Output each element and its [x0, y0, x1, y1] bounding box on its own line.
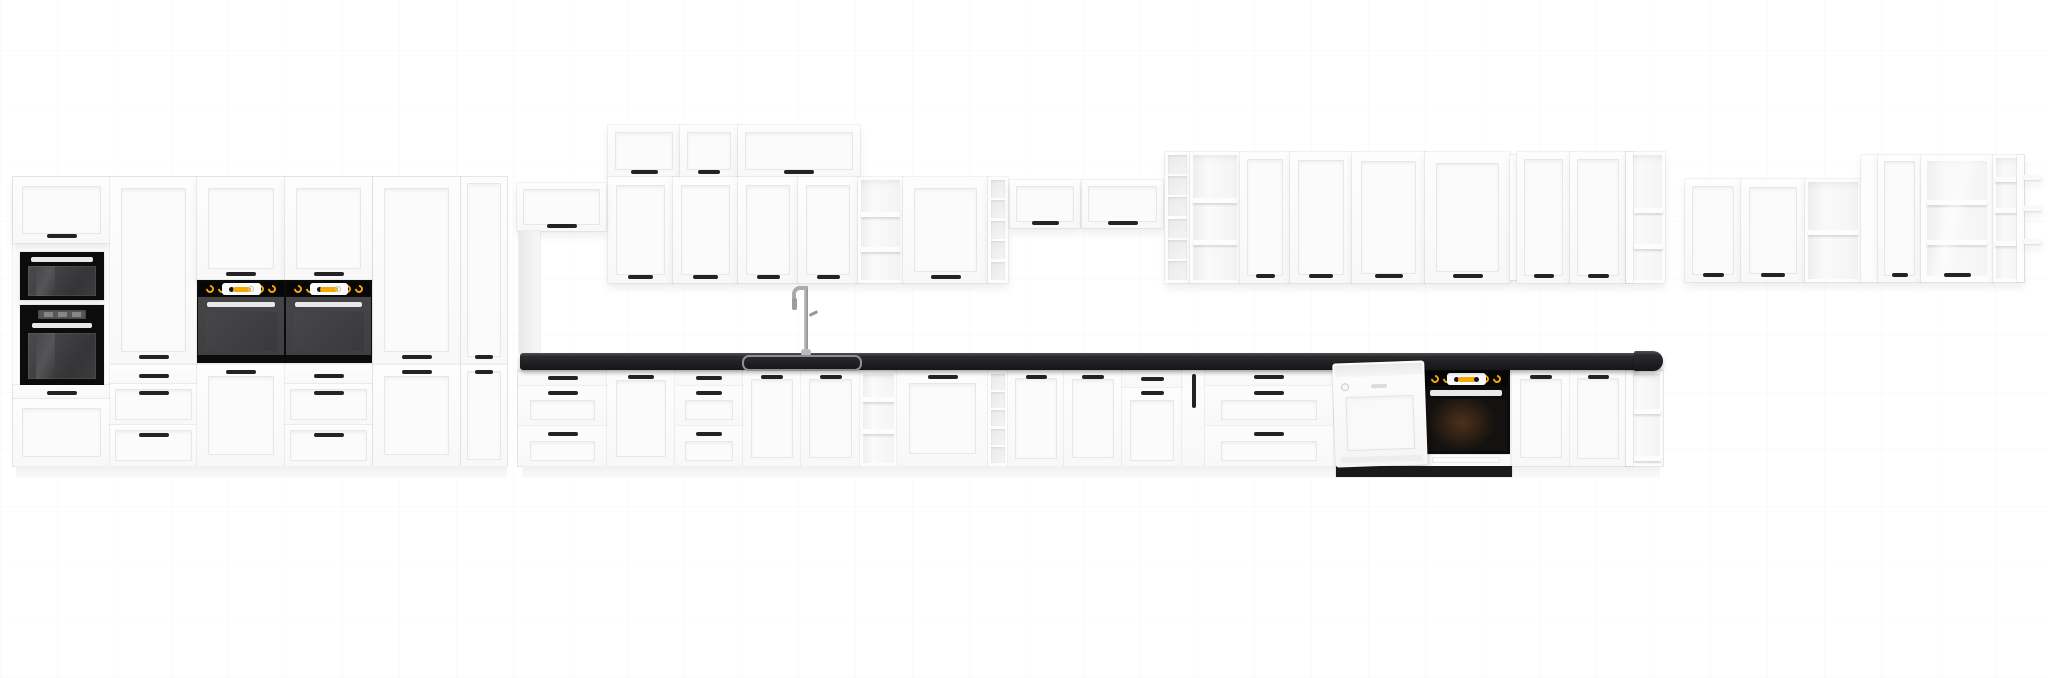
base-drawer-unit-wide-drawer-2: [1205, 385, 1333, 425]
right-corner-open-shelf-shelf-2: [1995, 208, 2016, 213]
tall3-top-door-door-panel: [208, 188, 274, 269]
base-drawer-unit-wide-drawer-panel-3: [1221, 441, 1317, 461]
wall-open-shelf-1-shelf-1: [861, 212, 900, 217]
tall6-door-door-panel: [467, 183, 501, 357]
wall-door-cab-7: [1290, 152, 1352, 283]
wall-door-cab-4: [798, 177, 858, 283]
wall-rack-column-2-cell-6: [1168, 261, 1187, 280]
hood-cabinet: [517, 183, 606, 231]
high-flip-cab-2-handle: [1108, 221, 1138, 225]
wall-flip-cab-1-door-panel: [615, 132, 673, 170]
tall5-door-door-panel: [384, 188, 449, 352]
tall2-door-handle: [139, 355, 169, 359]
under-counter-oven-knob-dot-2: [1474, 377, 1479, 382]
tall4-top-door: [285, 177, 372, 280]
tall4-drawer-top-handle: [314, 374, 344, 378]
tall1-microwave-handle-bar: [31, 257, 93, 262]
tall2-drawer-top-handle: [139, 374, 169, 378]
tall3-bottom-door-door-panel: [208, 376, 274, 455]
wall-door-cab-2-handle: [693, 275, 718, 279]
wall-door-cab-1-door-panel: [616, 185, 665, 275]
tall6-bottom-door: [461, 365, 507, 466]
tall1-bottom-door: [13, 399, 110, 466]
wall-door-cab-6-handle: [1256, 274, 1275, 278]
wall-open-shelf-1: [858, 177, 903, 283]
wall-door-cab-9-door-panel: [1436, 163, 1499, 272]
base-door-cab-4: [1064, 371, 1122, 466]
wall-flip-cab-2-door-panel: [687, 132, 731, 170]
wall-corner-open-shelf: [1626, 152, 1665, 283]
wall-rack-column-2-cell-3: [1168, 197, 1187, 216]
wall-door-cab-4-handle: [817, 275, 840, 279]
wall-rack-column-1-cell-1: [991, 180, 1005, 198]
dishwasher: [1332, 360, 1428, 467]
wall-door-cab-9-handle: [1453, 274, 1483, 278]
base-drawer-unit-2-drawer-1: [675, 371, 743, 385]
base-drawer-unit-2-drawer-3: [675, 425, 743, 466]
wall-rack-column-1-cell-4: [991, 241, 1005, 259]
base-end-open-shelf: [1626, 371, 1663, 466]
sink-faucet-spray-head: [792, 298, 797, 310]
base-door-cab-4-door-panel: [1072, 379, 1114, 458]
wall-door-cab-1: [608, 177, 673, 283]
tall1-oven-display-seg-2: [58, 312, 67, 317]
tall1-top-door-door-panel: [22, 186, 101, 234]
tall4-drawer-mid-handle: [314, 391, 344, 395]
wall-rack-column-1: [988, 177, 1008, 283]
base-drawer-unit-2-drawer-panel-2: [685, 400, 733, 420]
base-door-cab-5: [1512, 371, 1570, 466]
sink-basin: [742, 355, 862, 371]
base-rack-column-cell-3: [991, 410, 1005, 426]
tall5-bottom-door-handle: [402, 370, 432, 374]
tall2-door-door-panel: [121, 188, 186, 352]
tall3-top-door-handle: [226, 272, 256, 276]
wall-door-cab-2: [673, 177, 738, 283]
sink-faucet-rod: [804, 288, 808, 351]
right-wall-door-cab-1-door-panel: [1692, 186, 1734, 275]
tall3-built-in-oven: [197, 280, 285, 363]
base-rack-column-cell-1: [991, 374, 1005, 390]
base-door-cab-3: [1008, 371, 1064, 466]
tall1-small-drawer: [13, 385, 110, 399]
corner-shelf-stub-1: [2024, 175, 2042, 180]
wall-corner-open-shelf-shelf-1: [1634, 208, 1663, 213]
dishwasher-top-band: [1334, 362, 1422, 377]
base-door-cab-1: [607, 371, 675, 466]
right-wall-glass-cab-glass-sheen: [1927, 161, 1987, 276]
dishwasher-handle-slot: [1371, 384, 1387, 389]
wall-rack-column-1-cell-5: [991, 262, 1005, 280]
dishwasher-kick-vent: [1340, 455, 1422, 464]
base-open-shelf-shelf-1: [863, 397, 894, 402]
base-drawer-unit-wide: [1205, 371, 1333, 466]
tall3-built-in-oven-knob-dot-2: [248, 286, 254, 292]
right-wall-door-cab-1: [1685, 179, 1741, 282]
base-drawer-unit-2-drawer-handle-3: [696, 432, 722, 436]
base-drawer-door-unit-drawer-1: [1122, 371, 1182, 387]
kitchen-set-product-render: [0, 0, 2048, 678]
wall-door-cab-10: [1517, 152, 1570, 283]
base-door-cab-2-handle: [928, 375, 958, 379]
base-drawer-door-unit-drawer-panel-2: [1130, 400, 1174, 461]
base-drawer-unit-wide-drawer-handle-1: [1254, 375, 1284, 379]
wall-door-cab-1-handle: [628, 275, 653, 279]
corner-shelf-stub-2: [2024, 206, 2042, 211]
tall2-drawer-mid: [110, 384, 197, 425]
base-end-open-shelf-side-panel: [1626, 371, 1633, 466]
base-drawer-unit-1-drawer-handle-3: [548, 432, 578, 436]
hood-cabinet-door-panel: [523, 189, 600, 225]
wall-door-cab-5: [903, 177, 988, 283]
base-door-cab-1-door-panel: [616, 380, 666, 457]
right-wall-door-cab-1-handle: [1703, 273, 1724, 277]
base-drawer-unit-1-drawer-panel-2: [530, 400, 595, 420]
tall1-oven-window: [28, 333, 96, 379]
right-wall-door-cab-2: [1741, 179, 1805, 282]
tall5-bottom-door: [373, 365, 460, 466]
base-drawer-unit-wide-drawer-1: [1205, 371, 1333, 385]
right-corner-open-shelf: [1993, 155, 2024, 282]
tall3-built-in-oven-handle-bar: [207, 302, 275, 307]
base-rack-column-cell-2: [991, 392, 1005, 408]
hood-chimney-panel: [519, 231, 540, 353]
right-wall-glass-cab-handle: [1944, 273, 1971, 277]
tall4-built-in-oven-handle-bar: [295, 302, 362, 307]
tall4-built-in-oven-knob-icon-1: [292, 283, 303, 294]
base-drawer-unit-1-drawer-handle-2: [548, 391, 578, 395]
wall-rack-column-2-cell-4: [1168, 219, 1187, 238]
right-wall-open-shelf: [1805, 179, 1861, 282]
tall4-top-door-handle: [314, 272, 344, 276]
under-counter-oven-bottom-drawer-line: [1432, 457, 1500, 463]
tall2-drawer-bot-handle: [139, 433, 169, 437]
tall2-drawer-mid-handle: [139, 391, 169, 395]
tall1-top-door-handle: [47, 234, 77, 238]
tall3-built-in-oven-control-panel: [199, 282, 283, 296]
tall6-bottom-door-handle: [475, 370, 493, 374]
tall2-door: [110, 177, 197, 363]
base-cargo-pullout-pull-handle: [1192, 374, 1196, 408]
base-door-cab-6: [1570, 371, 1626, 466]
tall4-built-in-oven-knob-icon-3: [353, 283, 364, 294]
tall1-oven-handle-bar: [32, 323, 92, 328]
right-wall-filler: [1861, 155, 1878, 282]
wall-door-cab-3: [738, 177, 798, 283]
wall-corner-open-shelf-side-panel: [1626, 152, 1633, 283]
tall5-door: [373, 177, 460, 363]
base-door-cab-2-door-panel: [909, 383, 976, 454]
base-drawer-unit-wide-drawer-panel-2: [1221, 400, 1317, 420]
base-end-open-shelf-shelf-2: [1634, 456, 1661, 461]
base-door-cab-3-handle: [1026, 375, 1047, 379]
right-wall-open-shelf-shelf-1: [1808, 230, 1858, 235]
tall1-top-door: [13, 177, 110, 243]
base-door-cab-2: [897, 371, 988, 466]
under-counter-oven-glass: [1425, 399, 1507, 451]
base-door-cab-6-handle: [1588, 375, 1609, 379]
tall3-built-in-oven-control-pill: [222, 283, 261, 295]
wall-door-cab-6: [1240, 152, 1290, 283]
wall-door-cab-7-handle: [1309, 274, 1333, 278]
sink-base-door-2-door-panel: [809, 379, 852, 458]
tall4-built-in-oven-knob-dot-2: [335, 286, 341, 292]
wall-open-shelf-2-shelf-2: [1193, 240, 1237, 245]
wall-door-cab-3-door-panel: [746, 185, 790, 275]
tall6-door: [461, 177, 507, 363]
appliance-plinth-recess: [1336, 466, 1512, 477]
corner-shelf-stub-3: [2024, 239, 2042, 244]
base-door-cab-1-handle: [628, 375, 654, 379]
base-drawer-unit-wide-drawer-handle-3: [1254, 432, 1284, 436]
right-corner-open-shelf-shelf-1: [1995, 177, 2016, 182]
under-counter-oven-handle-bar: [1430, 390, 1502, 396]
tall2-drawer-bot: [110, 425, 197, 466]
wall-door-cab-8: [1352, 152, 1425, 283]
wall-flip-cab-2-handle: [698, 170, 720, 174]
tall6-bottom-door-door-panel: [467, 371, 501, 460]
base-door-cab-4-handle: [1082, 375, 1104, 379]
base-end-open-shelf-shelf-1: [1634, 409, 1661, 414]
dishwasher-front-panel: [1345, 395, 1415, 451]
base-cargo-pullout: [1182, 371, 1205, 466]
base-drawer-door-unit-drawer-handle-2: [1141, 391, 1164, 395]
base-open-shelf-shelf-2: [863, 429, 894, 434]
base-drawer-unit-1-drawer-handle-1: [548, 376, 578, 380]
wall-door-cab-11: [1570, 152, 1626, 283]
right-wall-door-cab-3-handle: [1892, 273, 1908, 277]
wall-door-cab-10-handle: [1534, 274, 1554, 278]
wall-door-cab-11-door-panel: [1577, 159, 1619, 276]
base-drawer-unit-1-drawer-3: [518, 425, 607, 466]
right-corner-open-shelf-side-panel: [2017, 155, 2024, 282]
base-rack-column-cell-5: [991, 447, 1005, 463]
base-rack-column: [988, 371, 1008, 466]
wall-door-cab-8-handle: [1375, 274, 1403, 278]
tall1-small-drawer-handle: [47, 391, 77, 395]
wall-rack-column-2-cell-2: [1168, 176, 1187, 195]
tall4-drawer-bot: [285, 425, 372, 466]
sink-base-door-1-door-panel: [751, 379, 793, 458]
base-drawer-unit-1-drawer-panel-3: [530, 441, 595, 461]
tall1-oven-display-seg-1: [44, 312, 53, 317]
wall-door-cab-7-door-panel: [1298, 160, 1344, 275]
tall3-built-in-oven-knob-icon-3: [266, 283, 277, 294]
right-corner-open-shelf-shelf-3: [1995, 241, 2016, 246]
base-drawer-door-unit: [1122, 371, 1182, 466]
tall4-drawer-mid: [285, 384, 372, 425]
base-drawer-unit-1: [518, 371, 607, 466]
tall4-built-in-oven-inner-glass: [293, 312, 364, 351]
high-flip-cab-1-door-panel: [1016, 186, 1074, 222]
tall3-built-in-oven-knob-icon-1: [204, 283, 215, 294]
right-wall-door-cab-3-door-panel: [1884, 161, 1915, 276]
sink-base-door-2-handle: [820, 375, 842, 379]
tall5-bottom-door-door-panel: [384, 376, 449, 455]
tall1-oven-display: [38, 310, 86, 319]
wall-door-cab-9: [1425, 152, 1510, 283]
wall-flip-cab-3-door-panel: [745, 132, 853, 170]
tall3-top-door: [197, 177, 285, 280]
under-counter-oven-knob-icon-1: [1429, 373, 1440, 384]
wall-open-shelf-1-shelf-2: [861, 247, 900, 252]
tall1-microwave: [20, 252, 104, 300]
tall1-oven: [20, 305, 104, 385]
tall2-drawer-top: [110, 365, 197, 384]
wall-door-cab-5-door-panel: [914, 188, 977, 272]
sink-faucet-base: [801, 349, 811, 355]
high-flip-cab-1-handle: [1032, 221, 1059, 225]
wall-door-cab-10-door-panel: [1524, 159, 1563, 276]
sink-faucet-lever: [809, 310, 818, 317]
tall6-door-handle: [475, 355, 493, 359]
right-wall-door-cab-3: [1878, 155, 1921, 282]
base-drawer-unit-2-drawer-2: [675, 385, 743, 425]
base-door-cab-6-door-panel: [1577, 378, 1619, 459]
base-open-shelf: [860, 371, 897, 466]
wall-door-cab-4-door-panel: [806, 185, 850, 275]
sink-base-door-1: [743, 371, 801, 466]
wall-filler-strip: [1510, 155, 1517, 280]
under-counter-oven-knob-icon-3: [1491, 373, 1502, 384]
wall-flip-cab-3: [738, 125, 860, 177]
base-drawer-unit-2-drawer-handle-1: [696, 376, 722, 380]
under-counter-oven: [1422, 369, 1510, 466]
high-flip-cab-2: [1082, 180, 1163, 228]
countertop: [520, 353, 1638, 370]
tall4-built-in-oven: [285, 280, 372, 363]
base-drawer-unit-2-drawer-handle-2: [696, 391, 722, 395]
wall-rack-column-2-cell-5: [1168, 240, 1187, 259]
tall4-drawer-top: [285, 365, 372, 384]
base-door-cab-5-door-panel: [1520, 379, 1562, 458]
base-rack-column-cell-4: [991, 429, 1005, 445]
tall4-built-in-oven-control-panel: [287, 282, 370, 296]
wall-door-cab-8-door-panel: [1361, 161, 1416, 274]
sink-base-door-2: [801, 371, 860, 466]
high-flip-cab-2-door-panel: [1088, 186, 1157, 222]
tall3-bottom-door-handle: [226, 370, 256, 374]
right-wall-glass-cab: [1921, 155, 1993, 282]
tall4-drawer-bot-handle: [314, 433, 344, 437]
base-door-cab-5-handle: [1530, 375, 1552, 379]
wall-flip-cab-1: [608, 125, 680, 177]
wall-rack-column-2: [1165, 152, 1190, 283]
base-drawer-unit-2: [675, 371, 743, 466]
wall-door-cab-11-handle: [1588, 274, 1609, 278]
wall-corner-open-shelf-shelf-2: [1634, 244, 1663, 249]
tall3-built-in-oven-inner-glass: [205, 312, 277, 351]
sink-base-door-1-handle: [761, 375, 783, 379]
wall-open-shelf-2-shelf-1: [1193, 198, 1237, 203]
wall-door-cab-3-handle: [757, 275, 780, 279]
wall-flip-cab-2: [680, 125, 738, 177]
base-drawer-unit-2-drawer-panel-3: [685, 441, 733, 461]
base-drawer-unit-wide-drawer-3: [1205, 425, 1333, 466]
hood-cabinet-handle: [547, 224, 577, 228]
floor-shadow-right: [516, 478, 1666, 491]
tall1-bottom-door-door-panel: [22, 408, 101, 457]
high-flip-cab-1: [1010, 180, 1080, 228]
wall-flip-cab-3-handle: [784, 170, 814, 174]
wall-door-cab-6-door-panel: [1247, 159, 1283, 276]
tall4-built-in-oven-control-pill: [310, 283, 348, 295]
wall-open-shelf-2: [1190, 152, 1240, 283]
tall1-microwave-window: [28, 266, 96, 296]
tall-run-plinth: [16, 466, 507, 478]
base-drawer-unit-1-drawer-1: [518, 371, 607, 385]
wall-flip-cab-1-handle: [631, 170, 658, 174]
right-wall-door-cab-2-handle: [1761, 273, 1785, 277]
dishwasher-start-button: [1341, 383, 1349, 391]
wall-rack-column-2-cell-1: [1168, 155, 1187, 174]
wall-door-cab-2-door-panel: [681, 185, 730, 275]
base-door-cab-3-door-panel: [1015, 378, 1057, 459]
tall3-bottom-door: [197, 365, 285, 466]
countertop-end-cap: [1634, 351, 1663, 371]
tall5-door-handle: [402, 355, 432, 359]
base-drawer-door-unit-drawer-2: [1122, 387, 1182, 466]
floor-shadow-left: [10, 478, 515, 491]
wall-rack-column-1-cell-2: [991, 200, 1005, 218]
wall-rack-column-1-cell-3: [991, 221, 1005, 239]
tall4-top-door-door-panel: [296, 188, 361, 269]
under-counter-oven-control-pill: [1447, 373, 1486, 385]
right-wall-door-cab-2-door-panel: [1749, 187, 1797, 274]
sink-faucet: [790, 286, 820, 355]
base-drawer-unit-1-drawer-2: [518, 385, 607, 425]
under-counter-oven-control-panel: [1424, 371, 1508, 386]
tall1-oven-display-seg-3: [72, 312, 81, 317]
base-drawer-unit-wide-drawer-handle-2: [1254, 391, 1284, 395]
wall-door-cab-5-handle: [931, 275, 961, 279]
base-drawer-door-unit-drawer-handle-1: [1141, 377, 1164, 381]
